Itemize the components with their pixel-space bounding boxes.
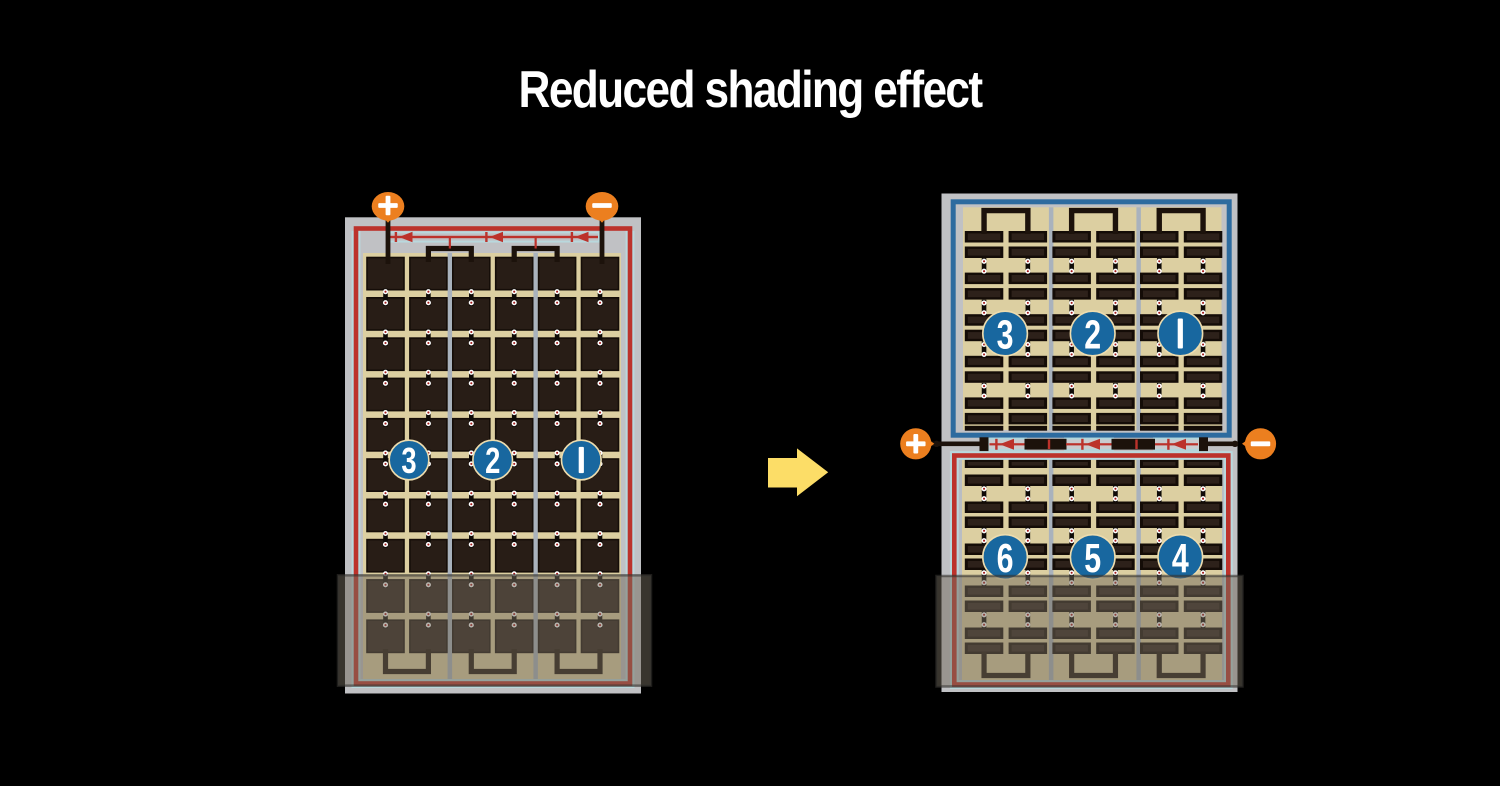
svg-text:2: 2: [1084, 311, 1101, 358]
svg-text:2: 2: [485, 440, 500, 481]
svg-text:3: 3: [997, 311, 1014, 358]
svg-text:6: 6: [997, 534, 1014, 581]
svg-text:5: 5: [1084, 534, 1101, 581]
svg-text:3: 3: [401, 440, 416, 481]
svg-text:Reduced shading effect: Reduced shading effect: [519, 61, 984, 119]
svg-text:4: 4: [1172, 534, 1189, 581]
